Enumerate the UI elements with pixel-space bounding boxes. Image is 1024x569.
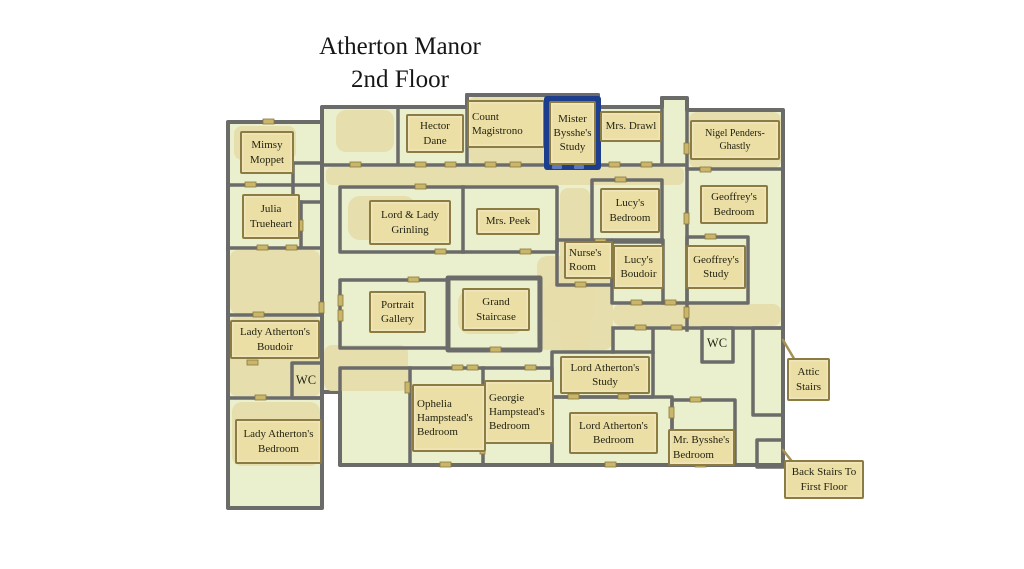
room-label-nigel-penders-ghastly[interactable]: Nigel Penders-Ghastly: [690, 120, 780, 160]
map-title-line1: Atherton Manor: [268, 30, 532, 63]
room-label-lady-athertons-bedroom[interactable]: Lady Atherton's Bedroom: [235, 419, 322, 464]
room-label-julia-trueheart[interactable]: Julia Trueheart: [242, 194, 300, 239]
room-label-hector-dane[interactable]: Hector Dane: [406, 114, 464, 153]
room-label-mrs-drawl[interactable]: Mrs. Drawl: [600, 111, 662, 142]
room-label-lord-athertons-bedroom[interactable]: Lord Atherton's Bedroom: [569, 412, 658, 454]
room-label-grand-staircase[interactable]: Grand Staircase: [462, 288, 530, 331]
room-label-georgie-hampsteads-bedroom[interactable]: Georgie Hampstead's Bedroom: [484, 380, 554, 444]
room-label-mister-bysshes-study[interactable]: Mister Bysshe's Study: [549, 101, 596, 165]
room-label-lord-lady-grinling[interactable]: Lord & Lady Grinling: [369, 200, 451, 245]
room-label-geoffreys-study[interactable]: Geoffrey's Study: [686, 245, 746, 289]
selected-room-highlight[interactable]: Mister Bysshe's Study: [544, 96, 601, 170]
room-label-count-magistrono[interactable]: Count Magistrono: [467, 100, 545, 148]
room-label-wc-east[interactable]: WC: [703, 333, 731, 354]
callout-label-attic-stairs[interactable]: Attic Stairs: [787, 358, 830, 401]
door-marker: [552, 165, 562, 169]
room-label-ophelia-hampsteads-bedroom[interactable]: Ophelia Hampstead's Bedroom: [412, 384, 486, 452]
room-label-lucys-bedroom[interactable]: Lucy's Bedroom: [600, 188, 660, 233]
floor-plan: Atherton Manor 2nd Floor Mimsy Moppet Ju…: [0, 0, 1024, 569]
room-label-mr-bysshes-bedroom[interactable]: Mr. Bysshe's Bedroom: [668, 429, 735, 466]
map-title-line2: 2nd Floor: [268, 63, 532, 96]
room-label-geoffreys-bedroom[interactable]: Geoffrey's Bedroom: [700, 185, 768, 224]
room-label-mrs-peek[interactable]: Mrs. Peek: [476, 208, 540, 235]
callout-label-back-stairs[interactable]: Back Stairs To First Floor: [784, 460, 864, 499]
map-title: Atherton Manor 2nd Floor: [268, 30, 532, 96]
room-label-lady-athertons-boudoir[interactable]: Lady Atherton's Boudoir: [230, 320, 320, 359]
room-label-mimsy-moppet[interactable]: Mimsy Moppet: [240, 131, 294, 174]
door-marker: [574, 165, 584, 169]
room-label-nurses-room[interactable]: Nurse's Room: [564, 241, 613, 279]
room-label-wc-west[interactable]: WC: [292, 369, 320, 391]
room-label-lucys-boudoir[interactable]: Lucy's Boudoir: [613, 245, 664, 289]
room-label-portrait-gallery[interactable]: Portrait Gallery: [369, 291, 426, 333]
room-label-lord-athertons-study[interactable]: Lord Atherton's Study: [560, 356, 650, 394]
